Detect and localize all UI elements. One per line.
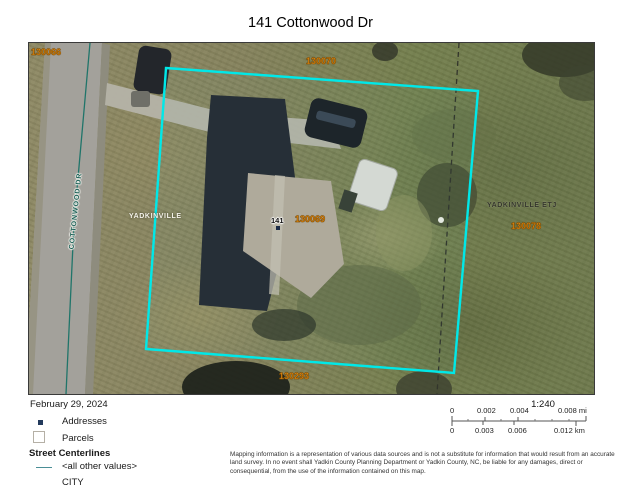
address-point	[276, 226, 280, 230]
map-canvas: 130066 130070 130069 130078 130293 YADKI…	[28, 42, 595, 395]
legend-item-city: CITY	[62, 477, 84, 488]
tree-branch-shadow	[372, 43, 398, 61]
parcel-label-130070: 130070	[306, 56, 336, 66]
address-number-label: 141	[271, 216, 284, 225]
scale-km-3: 0.012 km	[554, 426, 585, 435]
disclaimer-text: Mapping information is a representation …	[230, 451, 621, 476]
scale-km-0: 0	[450, 426, 454, 435]
legend-item-parcels: Parcels	[62, 433, 94, 444]
legend-item-all-other-values: <all other values>	[62, 461, 137, 472]
vehicle-top-trailer	[131, 91, 150, 107]
scale-mi-1: 0.002	[477, 406, 496, 415]
scale-mi-2: 0.004	[510, 406, 529, 415]
parcel-label-130066: 130066	[31, 47, 61, 57]
page-title: 141 Cottonwood Dr	[0, 15, 621, 31]
parcel-outline-icon	[33, 431, 45, 443]
scale-mi-0: 0	[450, 406, 454, 415]
scale-km-1: 0.003	[475, 426, 494, 435]
scale-mi-3: 0.008 mi	[558, 406, 587, 415]
city-label: YADKINVILLE	[129, 213, 182, 220]
etj-label: YADKINVILLE ETJ	[487, 202, 557, 209]
parcel-label-130293: 130293	[279, 371, 309, 381]
address-point-icon	[38, 420, 43, 425]
legend-group-street-centerlines: Street Centerlines	[29, 448, 110, 459]
scale-km-2: 0.006	[508, 426, 527, 435]
legend-date: February 29, 2024	[30, 399, 108, 410]
tree-shadow-bottom	[182, 361, 290, 394]
centerline-icon	[36, 467, 52, 468]
parcel-label-130078: 130078	[511, 221, 541, 231]
legend-item-addresses: Addresses	[62, 416, 107, 427]
tree-shadow-bottom2	[396, 371, 452, 394]
parcel-label-130069: 130069	[295, 214, 325, 224]
